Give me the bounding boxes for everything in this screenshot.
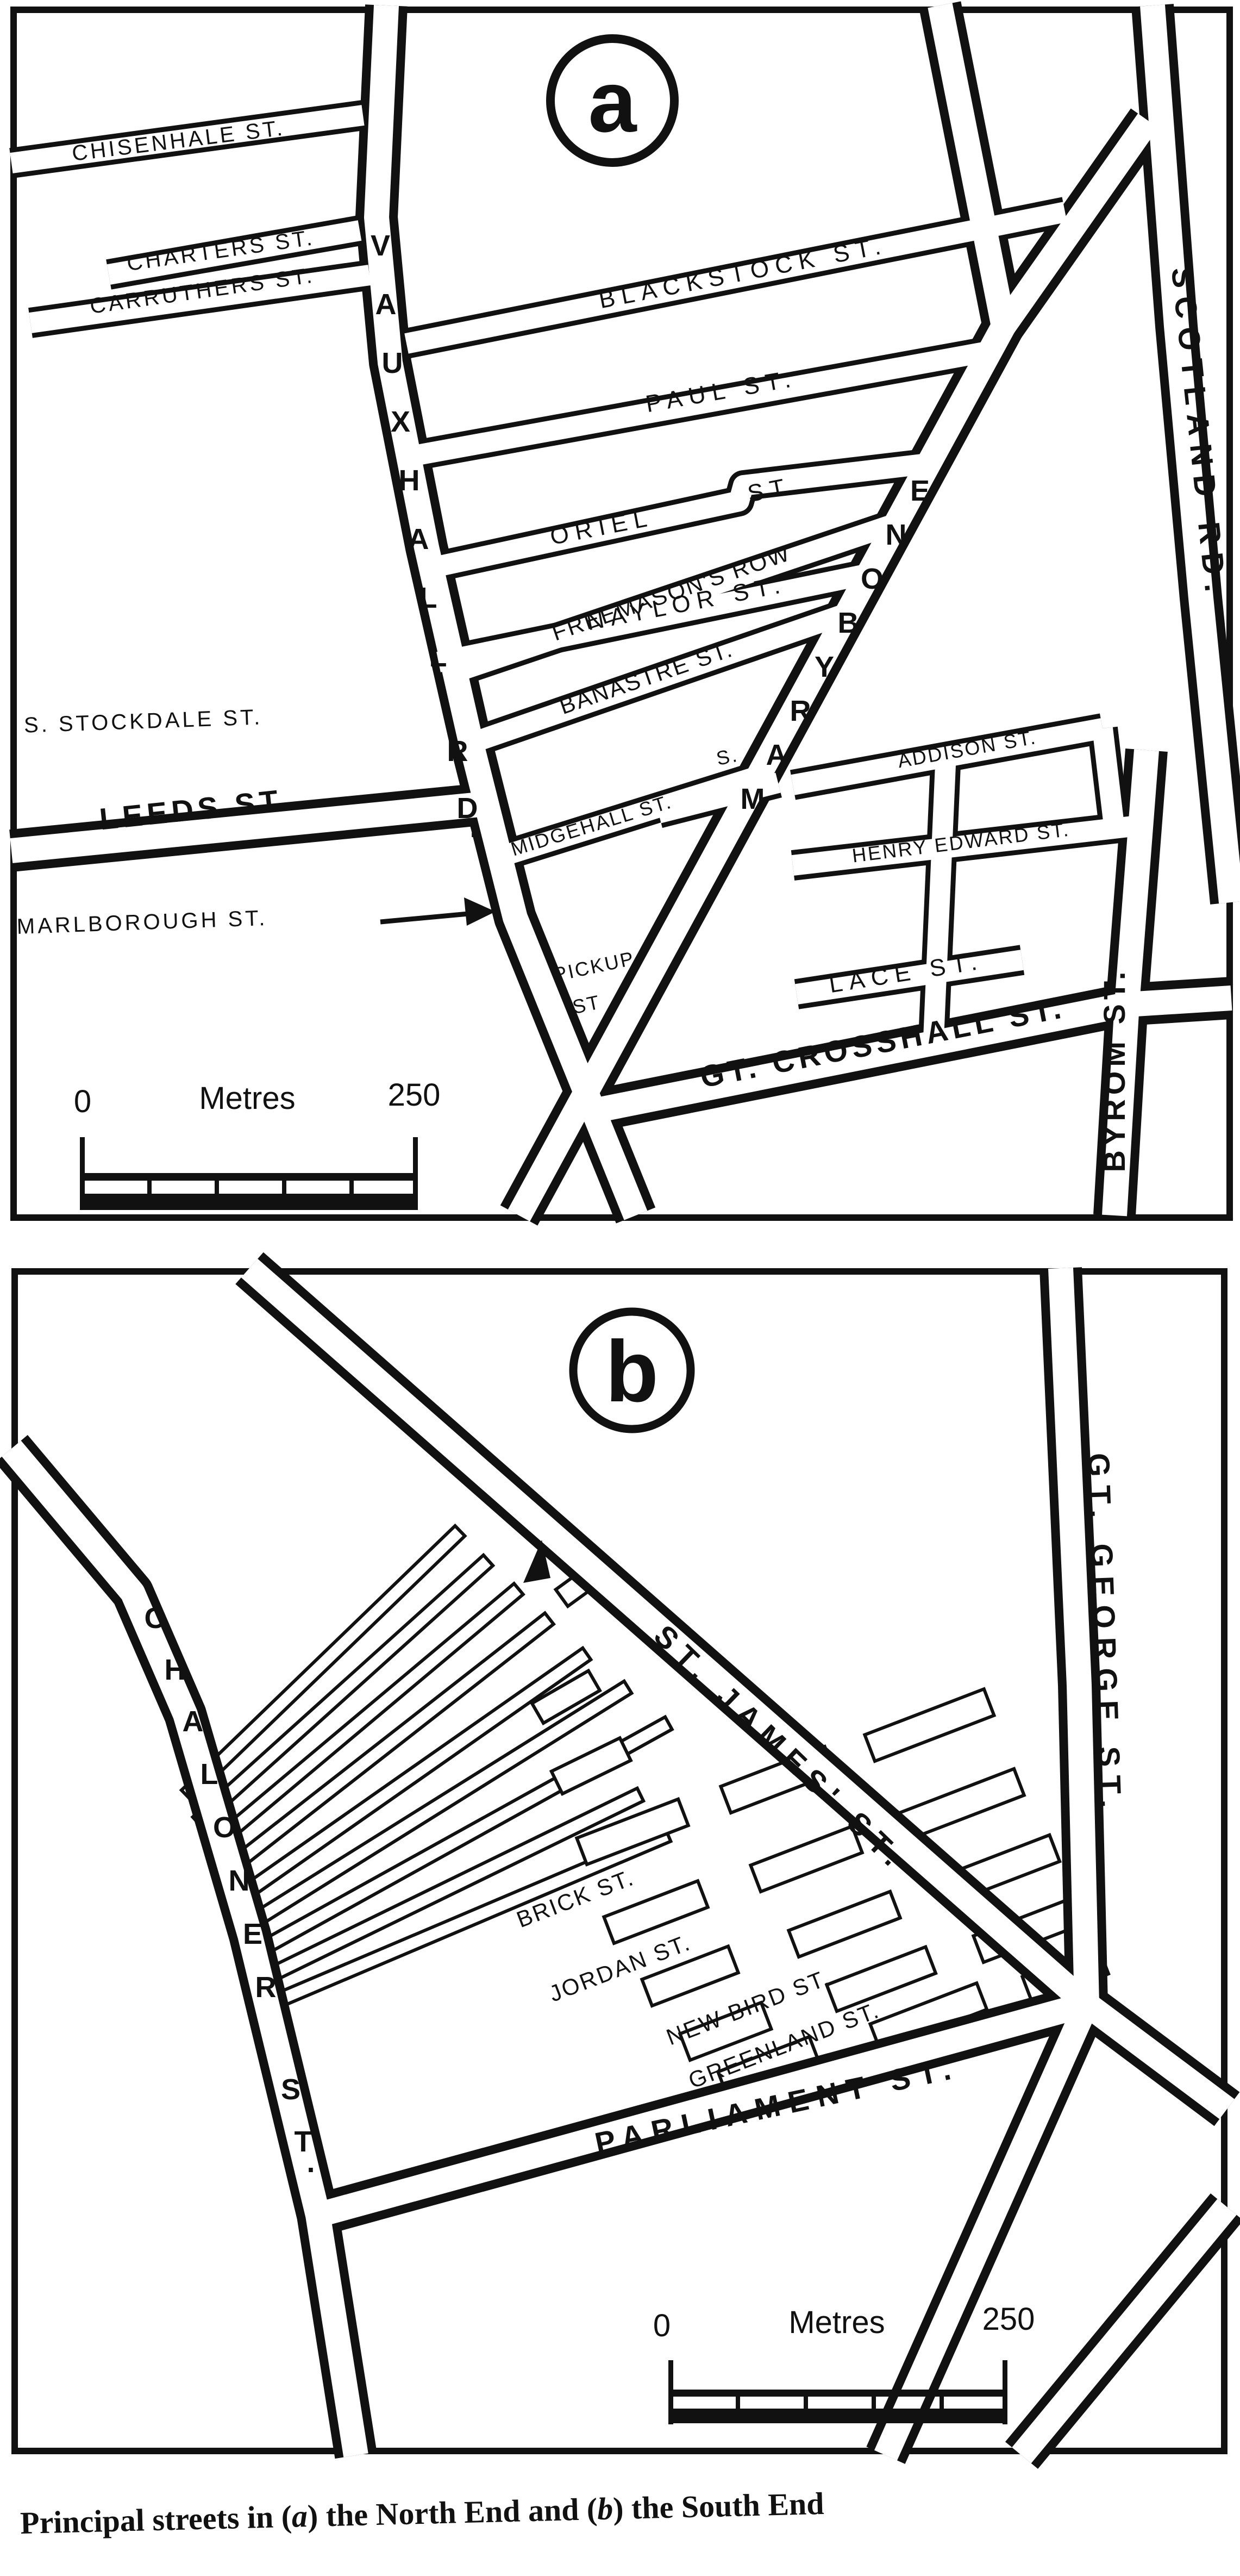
stacked-letter: . [469, 811, 478, 844]
stacked-letter: E [910, 475, 930, 507]
scale-max: 250 [982, 2301, 1035, 2337]
stacked-letter: S [281, 2073, 300, 2106]
badge-letter-b: b [605, 1323, 659, 1420]
scale-max: 250 [388, 1077, 441, 1113]
stacked-letter: V [371, 229, 390, 262]
street-label-s-abbrev: S. [715, 744, 741, 770]
stacked-letter: A [408, 523, 429, 556]
stacked-letter: B [838, 607, 859, 639]
stacked-letter: O [861, 563, 884, 595]
stacked-letter: N [886, 519, 907, 551]
map-a-badge: a [550, 39, 674, 163]
stacked-letter: L [419, 582, 437, 614]
stacked-letter: H [399, 464, 420, 497]
stacked-letter: R [790, 695, 811, 727]
stacked-letter: U [382, 347, 403, 379]
stacked-letter: H [165, 1654, 186, 1686]
stacked-letter: E [243, 1918, 262, 1950]
map-a-scale-bar: 0 Metres 250 [74, 1077, 441, 1210]
street-label-stockdale: S. STOCKDALE ST. [23, 705, 263, 737]
stacked-letter: L [429, 640, 447, 673]
map-b-panel: ST. JAMES' ST. GT. GEORGE ST. BRICK ST. … [11, 1268, 1227, 2455]
stacked-letter: Y [815, 651, 834, 683]
scale-zero: 0 [653, 2308, 671, 2343]
stacked-letter: R [255, 1971, 277, 2004]
marlborough-arrow-icon [380, 897, 496, 926]
stacked-letter: A [766, 739, 787, 771]
street-label-blackstock: BLACKSTOCK ST. [597, 232, 889, 314]
stacked-letter: N [229, 1864, 250, 1897]
map-b-badge: b [573, 1312, 691, 1429]
stacked-letter: A [375, 288, 397, 321]
street-label-banastre: BANASTRE ST. [556, 636, 736, 719]
stacked-letter: O [213, 1811, 236, 1844]
stacked-letter: A [183, 1705, 204, 1738]
street-label-chisenhale: CHISENHALE ST. [71, 116, 286, 166]
stacked-letter: X [391, 406, 410, 438]
stacked-letter: M [741, 783, 765, 815]
scale-unit: Metres [788, 2305, 885, 2340]
map-a-panel: CHISENHALE ST. CHARTERS ST. CARRUTHERS S… [11, 5, 1234, 1218]
stacked-letter: . [306, 2146, 315, 2179]
scale-zero: 0 [74, 1084, 91, 1119]
street-label-byrom: BYROM ST. [1097, 968, 1131, 1172]
stacked-letter: C [145, 1602, 166, 1635]
stacked-letter: R [447, 735, 468, 768]
stacked-letter: L [201, 1758, 218, 1791]
street-label-pickup-2: ST [571, 990, 603, 1018]
scale-unit: Metres [199, 1081, 295, 1116]
badge-letter-a: a [588, 53, 637, 150]
street-label-marlborough: MARLBOROUGH ST. [16, 906, 268, 939]
street-maps-figure: CHISENHALE ST. CHARTERS ST. CARRUTHERS S… [0, 0, 1240, 2576]
map-b-scale-bar: 0 Metres 250 [653, 2301, 1035, 2424]
